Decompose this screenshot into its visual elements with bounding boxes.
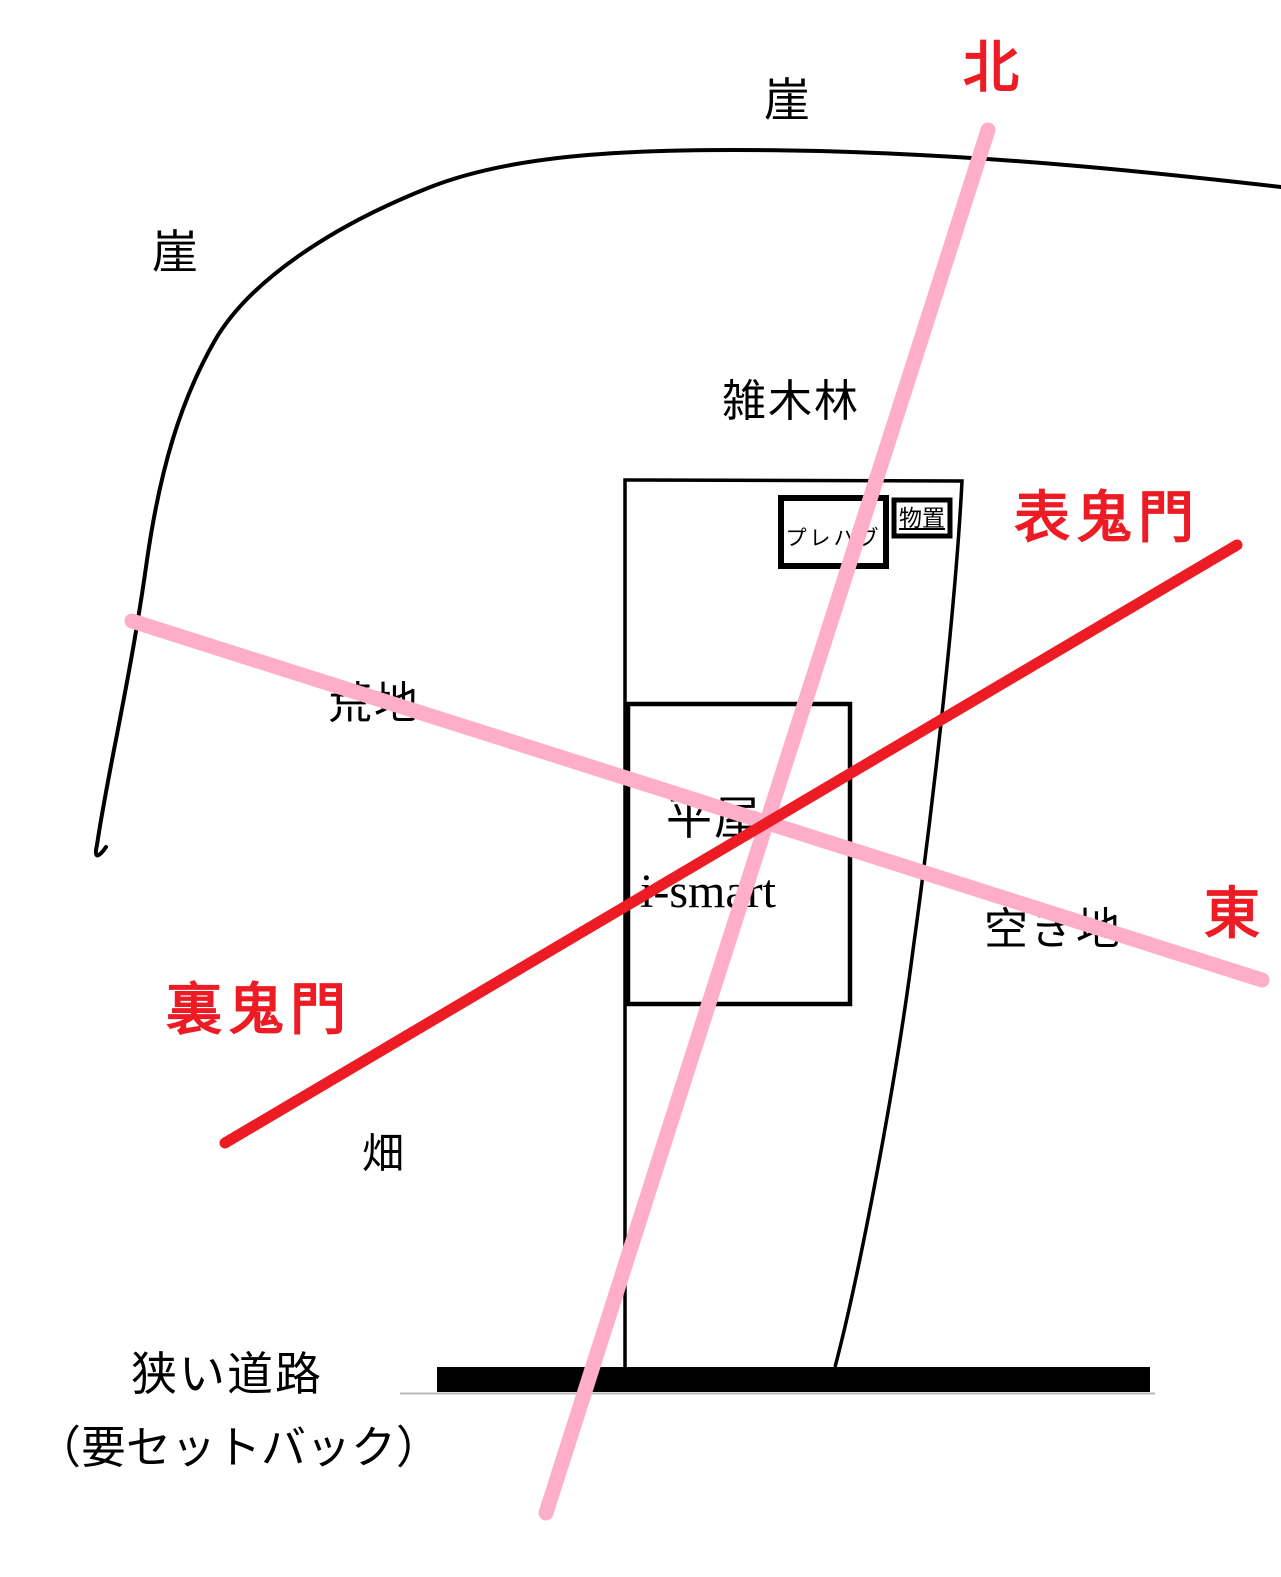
property-boundary [625, 480, 962, 1367]
site-plan-drawing [0, 0, 1281, 1577]
north-label: 北 [963, 40, 1019, 96]
shed-box [894, 500, 950, 536]
east-label: 東 [1204, 886, 1260, 942]
omote-kimon-label: 表鬼門 [1014, 490, 1200, 546]
road-bar [437, 1367, 1150, 1392]
ura-kimon-label: 裏鬼門 [166, 982, 352, 1038]
kimon-diagonal-line [225, 545, 1237, 1143]
east-west-axis-line [132, 621, 1262, 980]
site-plan-page: 崖 崖 雑木林 荒地 平屋 i-smart 空き地 畑 狭い道路 （要セットバッ… [0, 0, 1281, 1577]
house-outline [628, 704, 850, 1004]
